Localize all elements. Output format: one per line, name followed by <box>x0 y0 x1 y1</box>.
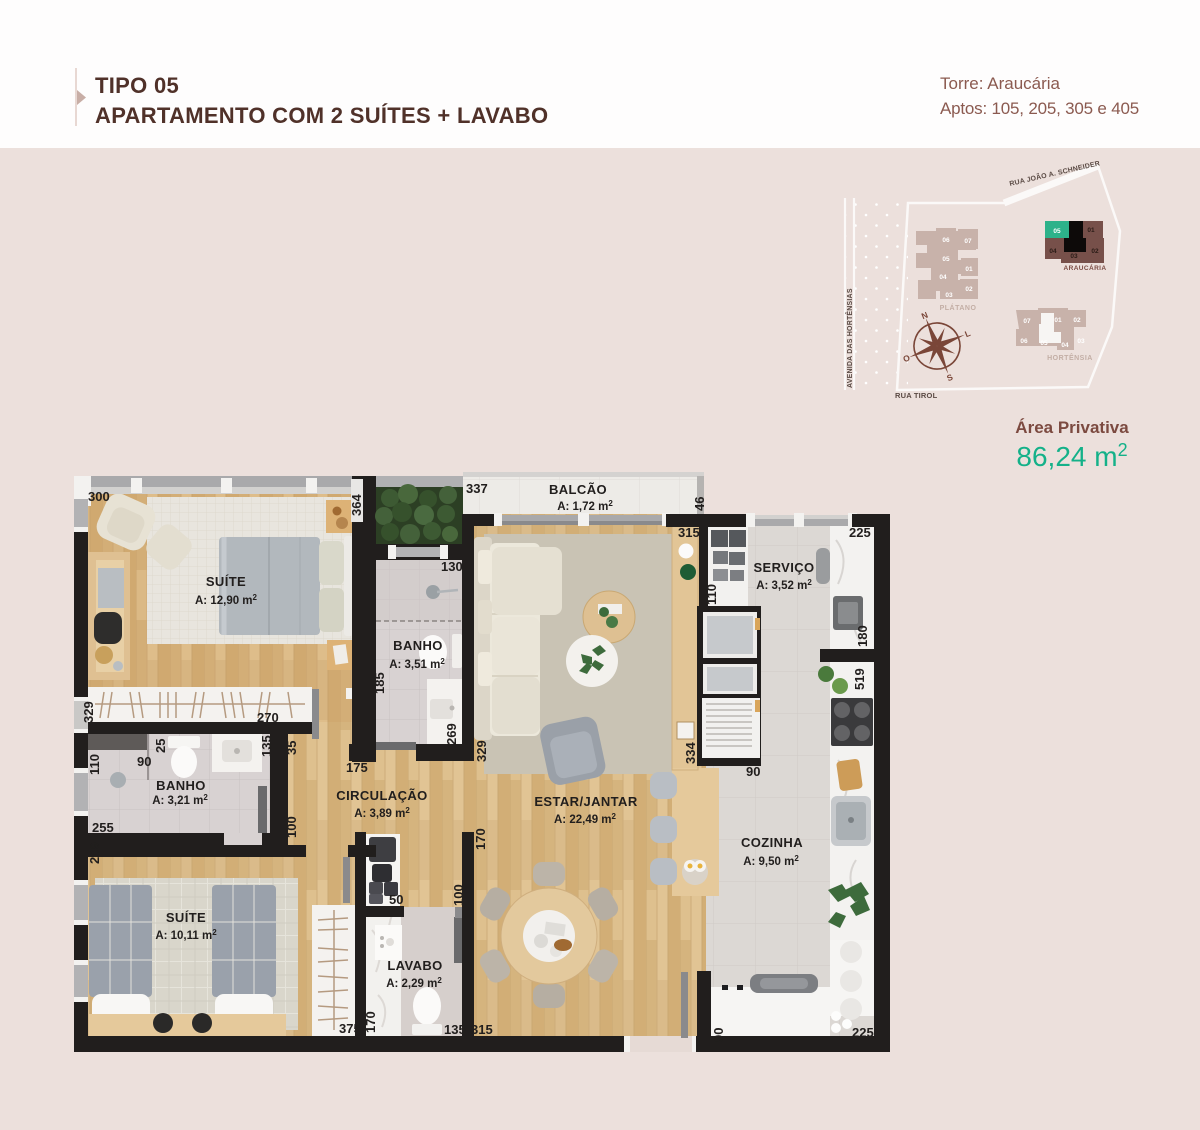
svg-text:A: 9,50 m2: A: 9,50 m2 <box>743 854 799 868</box>
svg-text:01: 01 <box>1087 227 1095 234</box>
svg-text:A: 3,89 m2: A: 3,89 m2 <box>354 806 410 820</box>
svg-text:100: 100 <box>451 884 466 906</box>
svg-text:07: 07 <box>964 238 972 245</box>
svg-text:225: 225 <box>852 1025 874 1040</box>
svg-text:03: 03 <box>945 292 953 299</box>
svg-text:COZINHA: COZINHA <box>741 835 803 850</box>
svg-text:315: 315 <box>471 1022 493 1037</box>
svg-text:A: 3,51 m2: A: 3,51 m2 <box>389 657 445 671</box>
svg-text:46: 46 <box>692 497 707 511</box>
svg-text:BANHO: BANHO <box>393 638 443 653</box>
svg-text:04: 04 <box>1049 248 1057 255</box>
svg-text:375: 375 <box>339 1021 361 1036</box>
svg-text:LAVABO: LAVABO <box>387 958 442 973</box>
svg-text:315: 315 <box>678 525 700 540</box>
svg-text:25: 25 <box>153 739 168 753</box>
svg-text:A: 2,29 m2: A: 2,29 m2 <box>386 976 442 990</box>
svg-text:ARAUCÁRIA: ARAUCÁRIA <box>1064 263 1107 272</box>
svg-text:A: 22,49 m2: A: 22,49 m2 <box>554 812 617 826</box>
svg-text:SUÍTE: SUÍTE <box>206 574 246 589</box>
svg-text:300: 300 <box>88 489 110 504</box>
svg-text:334: 334 <box>683 742 698 764</box>
svg-text:A: 10,11 m2: A: 10,11 m2 <box>155 928 217 942</box>
svg-text:364: 364 <box>349 494 364 516</box>
svg-text:170: 170 <box>363 1011 378 1033</box>
svg-text:03: 03 <box>1070 253 1078 260</box>
svg-text:Área Privativa: Área Privativa <box>1015 418 1129 437</box>
svg-text:01: 01 <box>1054 317 1062 324</box>
svg-text:269: 269 <box>87 842 102 864</box>
svg-text:02: 02 <box>1073 317 1081 324</box>
svg-text:02: 02 <box>965 286 973 293</box>
svg-text:A: 1,72 m2: A: 1,72 m2 <box>557 499 613 513</box>
svg-text:BALCÃO: BALCÃO <box>549 482 607 497</box>
svg-text:130: 130 <box>441 559 463 574</box>
svg-text:A: 3,21 m2: A: 3,21 m2 <box>152 793 208 807</box>
svg-text:90: 90 <box>137 754 151 769</box>
svg-text:HORTÊNSIA: HORTÊNSIA <box>1047 353 1093 362</box>
svg-text:03: 03 <box>1077 338 1085 345</box>
svg-text:90: 90 <box>746 764 760 779</box>
svg-text:50: 50 <box>389 892 403 907</box>
svg-text:110: 110 <box>87 754 102 775</box>
svg-text:A: 3,52 m2: A: 3,52 m2 <box>756 578 812 592</box>
svg-text:CIRCULAÇÃO: CIRCULAÇÃO <box>336 788 427 803</box>
svg-text:255: 255 <box>92 820 114 835</box>
svg-text:225: 225 <box>849 525 871 540</box>
svg-text:06: 06 <box>1020 338 1028 345</box>
svg-text:A: 12,90 m2: A: 12,90 m2 <box>195 593 258 607</box>
svg-text:269: 269 <box>444 723 459 745</box>
svg-text:05: 05 <box>942 256 950 263</box>
svg-text:185: 185 <box>372 672 387 694</box>
svg-text:04: 04 <box>939 274 947 281</box>
svg-text:07: 07 <box>1023 318 1031 325</box>
svg-text:329: 329 <box>81 701 96 723</box>
svg-text:100: 100 <box>284 816 299 838</box>
svg-text:PLÁTANO: PLÁTANO <box>940 303 977 312</box>
svg-text:175: 175 <box>346 760 368 775</box>
svg-text:35: 35 <box>284 741 299 755</box>
svg-text:Aptos: 105, 205, 305 e 405: Aptos: 105, 205, 305 e 405 <box>940 99 1139 118</box>
svg-text:329: 329 <box>474 740 489 762</box>
svg-text:BANHO: BANHO <box>156 778 206 793</box>
svg-text:AVENIDA DAS HORTÊNSIAS: AVENIDA DAS HORTÊNSIAS <box>845 288 854 388</box>
svg-text:135: 135 <box>444 1022 466 1037</box>
svg-text:180: 180 <box>855 625 870 647</box>
svg-text:RUA TIROL: RUA TIROL <box>895 391 938 400</box>
svg-text:86,24 m2: 86,24 m2 <box>1016 440 1127 472</box>
svg-text:01: 01 <box>965 266 973 273</box>
svg-text:06: 06 <box>942 237 950 244</box>
svg-text:90: 90 <box>711 1028 726 1042</box>
svg-text:110: 110 <box>704 584 719 605</box>
svg-text:TIPO 05: TIPO 05 <box>95 73 179 98</box>
svg-text:SUÍTE: SUÍTE <box>166 910 206 925</box>
svg-text:170: 170 <box>473 828 488 850</box>
svg-text:05: 05 <box>1053 228 1061 235</box>
svg-text:04: 04 <box>1061 342 1069 349</box>
svg-text:Torre: Araucária: Torre: Araucária <box>940 74 1061 93</box>
svg-text:02: 02 <box>1091 248 1099 255</box>
svg-text:519: 519 <box>852 668 867 690</box>
svg-text:135: 135 <box>259 735 274 757</box>
svg-text:APARTAMENTO COM 2 SUÍTES + LAV: APARTAMENTO COM 2 SUÍTES + LAVABO <box>95 103 548 128</box>
svg-text:SERVIÇO: SERVIÇO <box>753 560 814 575</box>
svg-text:337: 337 <box>466 481 488 496</box>
svg-text:ESTAR/JANTAR: ESTAR/JANTAR <box>534 794 637 809</box>
svg-text:05: 05 <box>1040 340 1048 347</box>
svg-text:270: 270 <box>257 710 279 725</box>
